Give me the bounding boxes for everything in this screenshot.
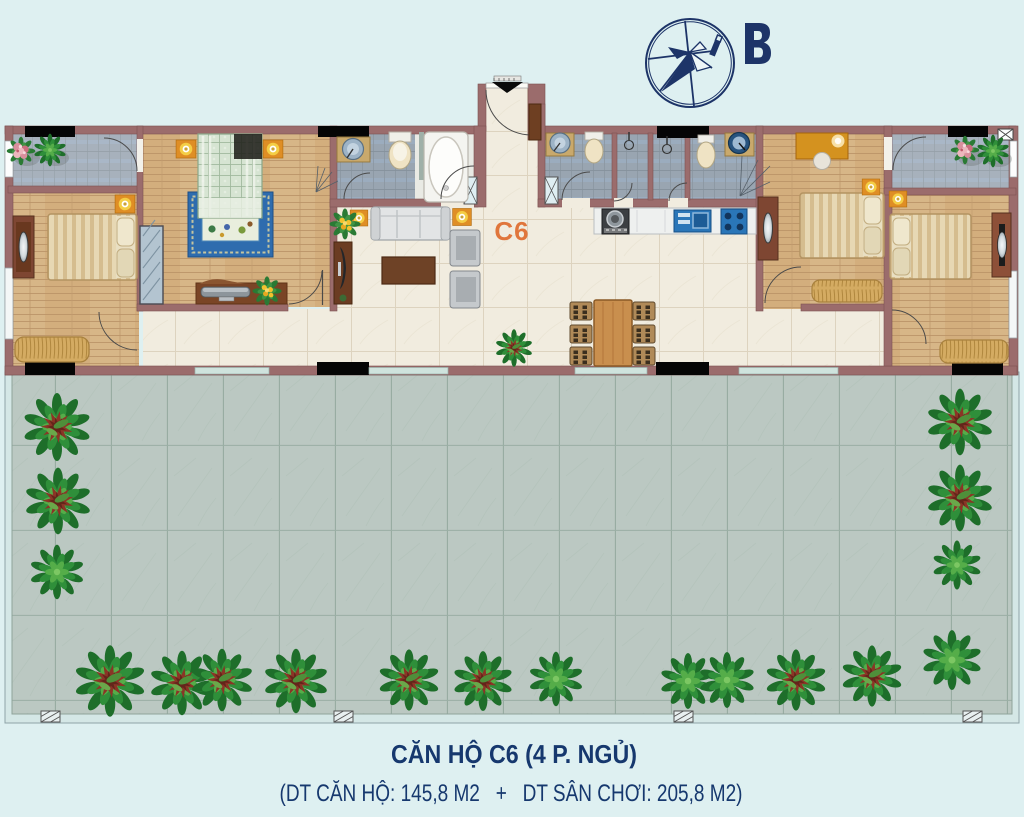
svg-text:C6: C6 — [494, 216, 529, 246]
svg-text:CĂN HỘ C6 (4 P. NGỦ): CĂN HỘ C6 (4 P. NGỦ) — [391, 739, 637, 769]
svg-text:(DT CĂN HỘ: 145,8 M2 + DT: (DT CĂN HỘ: 145,8 M2 + DT SÂN CHƠI: 205,… — [280, 779, 743, 807]
